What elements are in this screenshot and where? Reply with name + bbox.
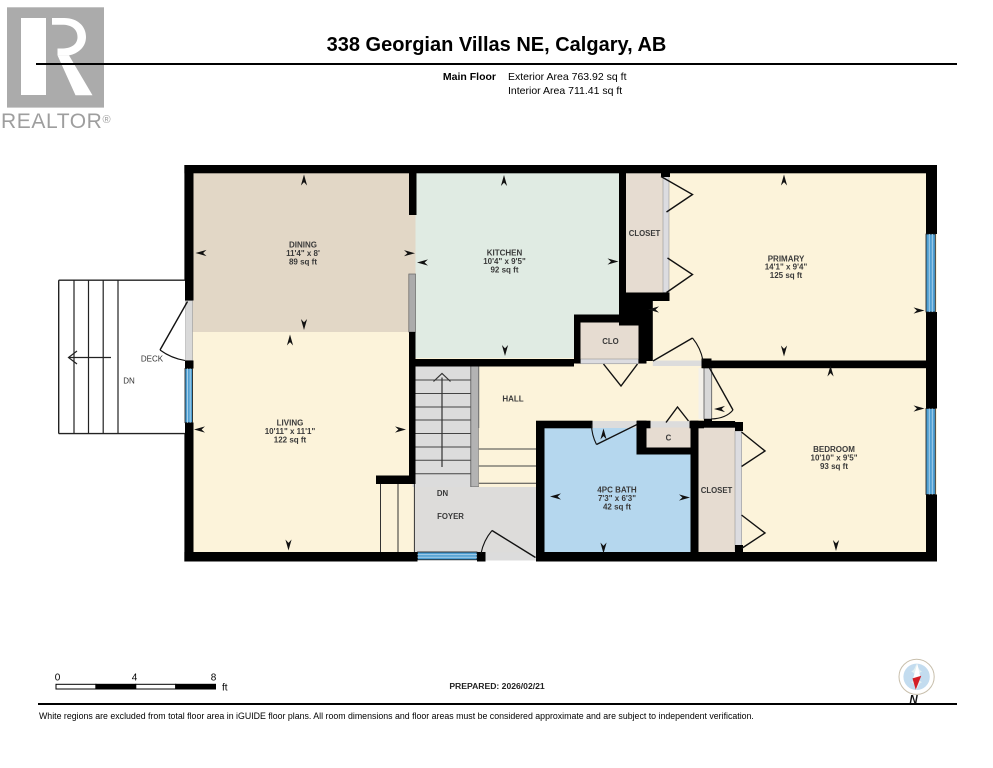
svg-text:DN: DN — [437, 489, 449, 498]
svg-text:CLOSET: CLOSET — [701, 486, 733, 495]
svg-text:125 sq ft: 125 sq ft — [770, 271, 803, 280]
svg-text:89 sq ft: 89 sq ft — [289, 257, 317, 266]
svg-text:42 sq ft: 42 sq ft — [603, 502, 631, 511]
svg-text:CLOSET: CLOSET — [629, 229, 661, 238]
svg-text:FOYER: FOYER — [437, 512, 464, 521]
svg-text:92 sq ft: 92 sq ft — [490, 265, 518, 274]
svg-text:122 sq ft: 122 sq ft — [274, 435, 307, 444]
svg-text:93 sq ft: 93 sq ft — [820, 462, 848, 471]
svg-text:HALL: HALL — [502, 395, 523, 404]
svg-text:DECK: DECK — [141, 355, 164, 364]
svg-text:C: C — [666, 434, 672, 443]
svg-text:CLO: CLO — [602, 337, 618, 346]
svg-text:DN: DN — [123, 377, 135, 386]
